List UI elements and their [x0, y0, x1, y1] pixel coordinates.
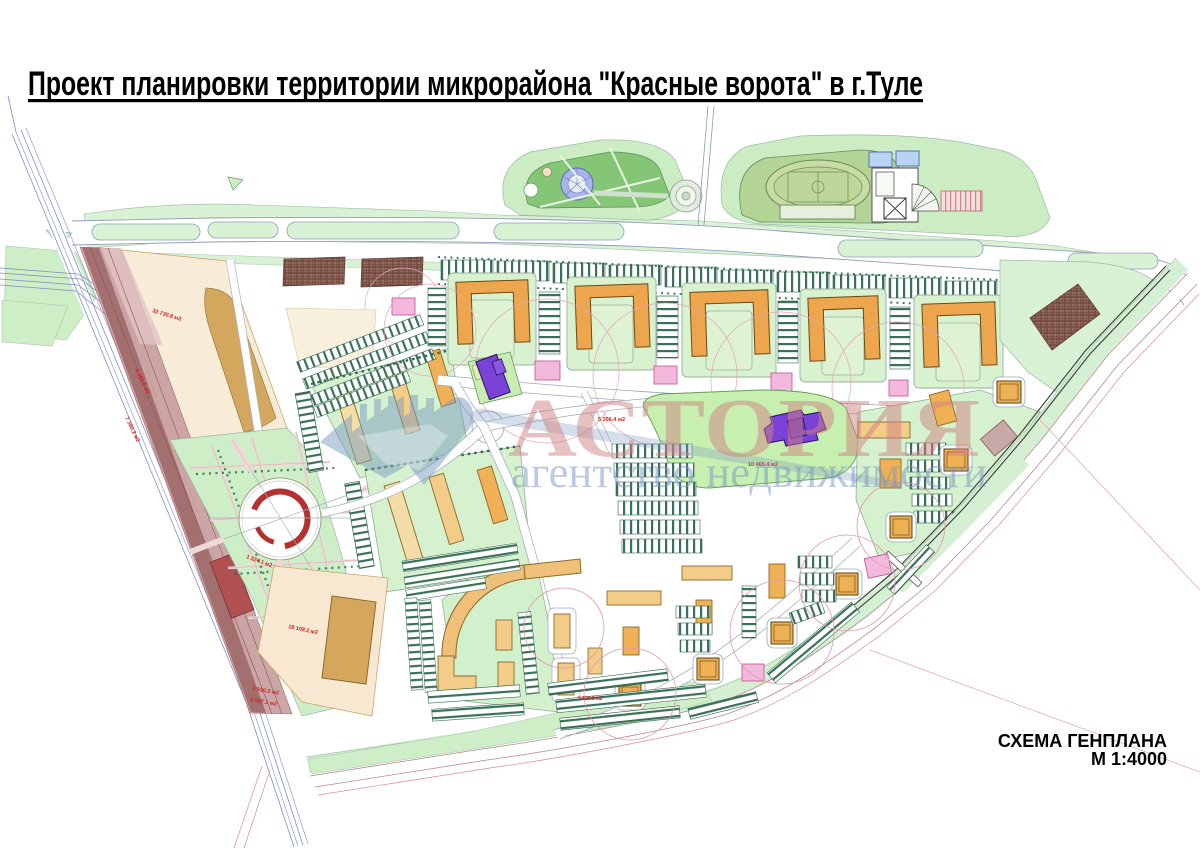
svg-text:М 1:4000: М 1:4000	[1091, 749, 1167, 769]
svg-text:агентство недвижимости: агентство недвижимости	[511, 448, 987, 497]
svg-text:Проект планировки территории м: Проект планировки территории микрорайона…	[28, 65, 923, 103]
svg-text:СХЕМА ГЕНПЛАНА: СХЕМА ГЕНПЛАНА	[998, 731, 1167, 751]
svg-text:2 836.5 м2: 2 836.5 м2	[578, 696, 603, 702]
